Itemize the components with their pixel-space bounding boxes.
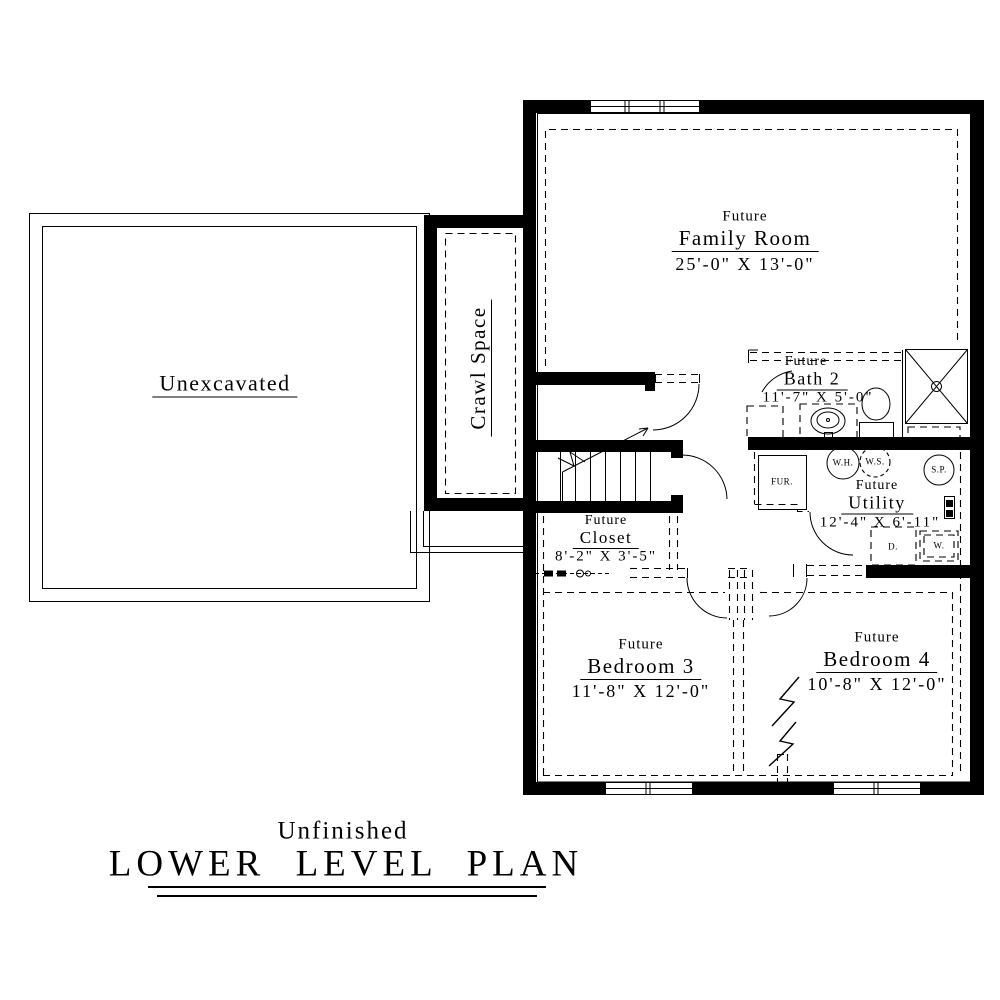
sink-icon [811, 408, 845, 439]
sump-pump-label: S.P. [931, 466, 947, 475]
title-underline-2 [157, 895, 537, 897]
furnace-label: FUR. [771, 478, 793, 487]
washer-label: W. [934, 542, 945, 551]
bath2-name: Bath 2 [777, 370, 848, 391]
stair-direction-arrow [558, 428, 648, 505]
window-bedroom4 [833, 782, 921, 795]
hall-future-walls [630, 566, 866, 578]
family-room-name: Family Room [672, 228, 819, 252]
electrical-panel [945, 497, 955, 519]
floor-plan: Unexcavated Crawl Space Future Family Ro… [0, 0, 1000, 1000]
bedroom3-name: Bedroom 3 [580, 656, 701, 680]
unexcavated-walls [30, 214, 524, 602]
family-room-opening-dashed [655, 375, 700, 383]
utility-name: Utility [841, 494, 913, 515]
water-softener-label: W.S. [865, 458, 884, 467]
bedroom4-dims: 10'-8" X 12'-0" [807, 675, 946, 693]
stairs [561, 452, 651, 501]
family-room-door-arc [653, 384, 699, 430]
closet-dims: 8'-2" X 3'-5" [555, 550, 657, 565]
family-room-dims: 25'-0" X 13'-0" [675, 255, 814, 273]
bedroom3-door-arc [687, 578, 727, 618]
bath2-prefix: Future [785, 355, 828, 369]
closet-name: Closet [573, 529, 639, 549]
title-underline-1 [148, 886, 546, 888]
wall-break-zigzags [769, 677, 799, 766]
utility-dims: 12'-4" X 6'-11" [820, 516, 940, 531]
plan-subtitle: Unfinished [277, 819, 408, 844]
bedroom3-prefix: Future [618, 638, 663, 653]
shower-icon [903, 350, 968, 438]
plan-title: LOWER LEVEL PLAN [109, 846, 583, 883]
dryer-label: D. [888, 543, 898, 552]
closet-prefix: Future [585, 514, 628, 528]
bedroom3-dims: 11'-8" X 12'-0" [572, 682, 711, 700]
water-heater-label: W.H. [833, 459, 854, 468]
family-room-prefix: Future [722, 210, 767, 225]
bedroom4-door-arc [769, 578, 807, 616]
stair-hall-door-arc [682, 455, 727, 499]
crawl-space-label: Crawl Space [468, 299, 492, 436]
bedroom-divider-future-wall [730, 570, 789, 782]
bath2-dims: 11'-7" X 5'-0" [763, 391, 874, 406]
utility-prefix: Future [856, 479, 899, 493]
window-top [590, 100, 700, 113]
bedroom4-name: Bedroom 4 [816, 649, 937, 673]
window-bedroom3 [605, 782, 693, 795]
unexcavated-label: Unexcavated [152, 373, 297, 398]
bedroom4-prefix: Future [854, 631, 899, 646]
